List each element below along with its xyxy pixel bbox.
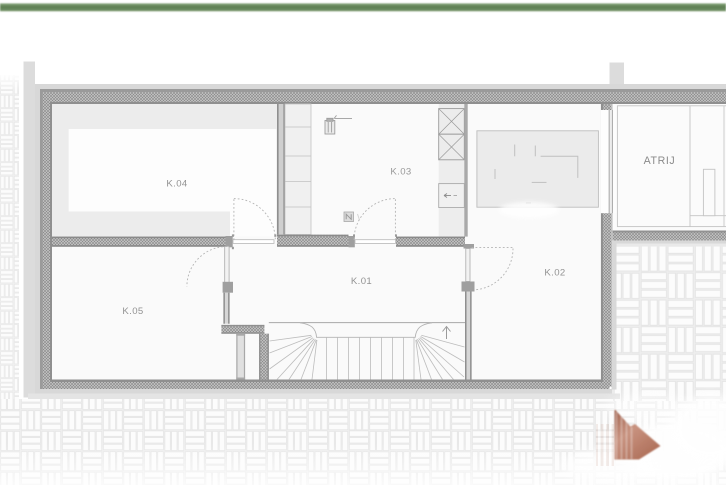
svg-text:ATRIJ: ATRIJ — [644, 155, 676, 167]
svg-text:K.04: K.04 — [166, 179, 188, 190]
svg-text:K.01: K.01 — [351, 276, 372, 287]
svg-text:K.02: K.02 — [544, 268, 565, 279]
svg-text:K.05: K.05 — [122, 306, 143, 317]
svg-text:K.03: K.03 — [390, 167, 411, 178]
